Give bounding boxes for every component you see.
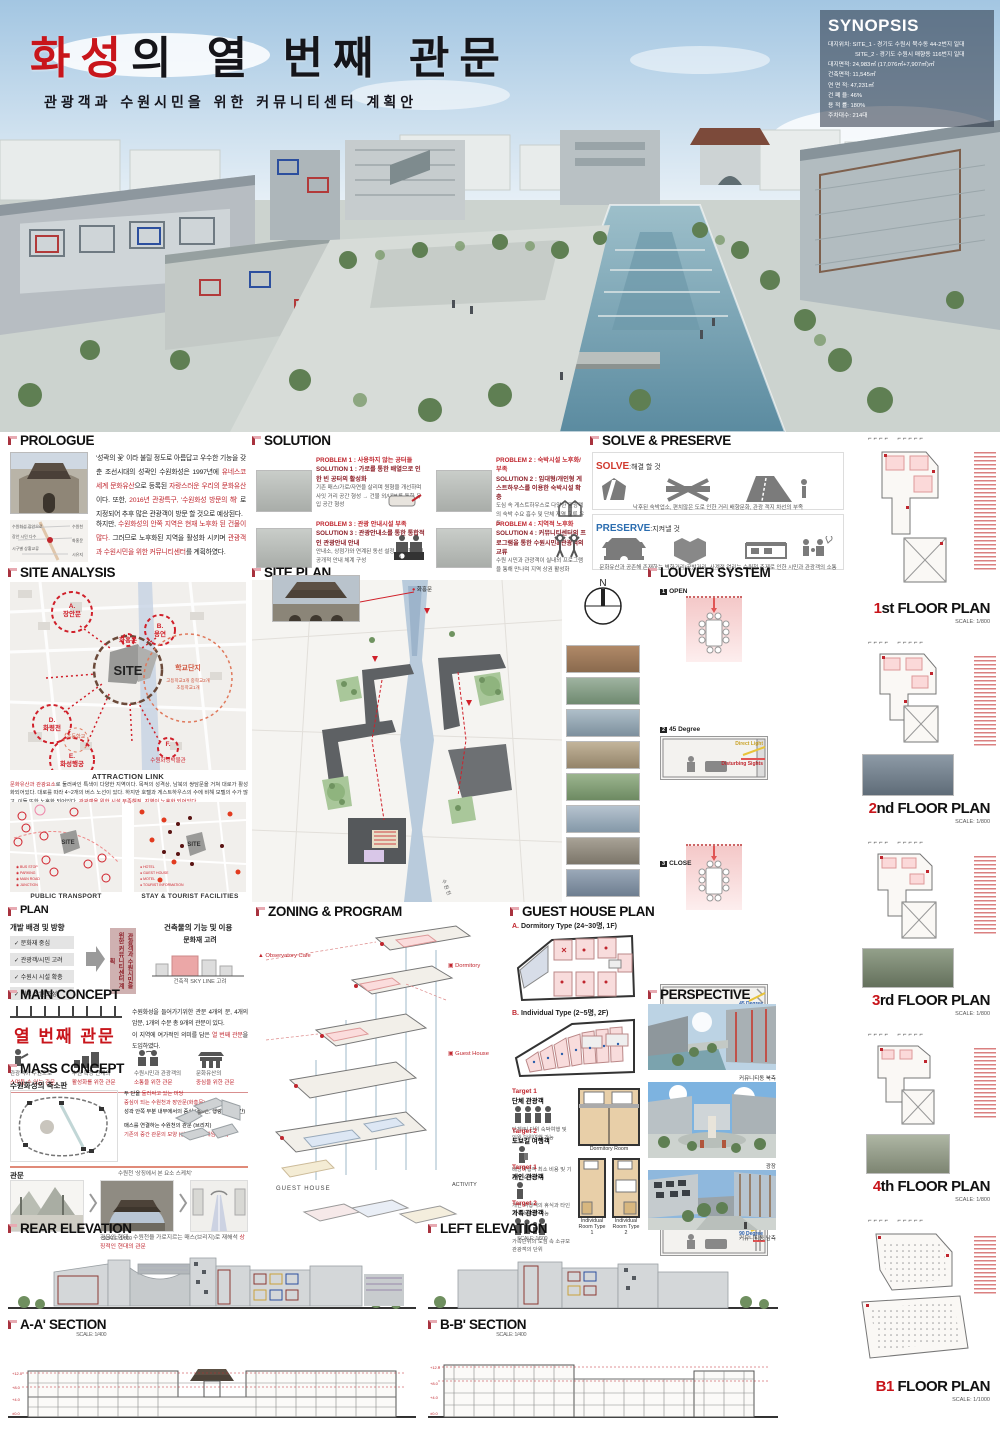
svg-text:학교단지: 학교단지 bbox=[175, 663, 201, 672]
dimension-ticks: ⌐⌐⌐⌐ ⌐⌐⌐⌐⌐ bbox=[868, 640, 925, 646]
guest-house-type-b: B. Individual Type (2~5명, 2F) bbox=[512, 1008, 608, 1018]
gap-arrow-icon bbox=[388, 492, 422, 510]
aa-section-drawing: +12.0+8.0+4.0±0.0 bbox=[8, 1345, 416, 1425]
site-photo bbox=[566, 837, 640, 865]
check-item: 문화재 중심 bbox=[10, 936, 74, 949]
individual-type-plan bbox=[512, 1018, 638, 1080]
plan-goal-box: 관광객과 수원시민을 위한 커뮤니티센터 계획 bbox=[110, 928, 136, 994]
stay-tourist-caption: STAY & TOURIST FACILITIES bbox=[134, 893, 246, 900]
main-title: 화성의 열 번째 관문 bbox=[30, 22, 590, 86]
svg-text:화령전: 화령전 bbox=[43, 723, 61, 732]
svg-text:SITE: SITE bbox=[187, 842, 200, 848]
louver-state-open: 1OPEN bbox=[660, 588, 687, 595]
section-guest-house: GUEST HOUSE PLAN bbox=[510, 905, 654, 919]
svg-text:A.: A. bbox=[69, 603, 76, 610]
fortress-loop-sketch bbox=[10, 1090, 118, 1162]
north-arrow-icon: N bbox=[580, 576, 626, 628]
public-transport-map: SITE ◉ BUS STOP◉ PARKING◉ MAIN ROAD◉ JUN… bbox=[10, 802, 122, 892]
svg-text:수원화성박물관: 수원화성박물관 bbox=[150, 756, 185, 764]
mass-model bbox=[168, 1090, 248, 1154]
solution-photo bbox=[436, 528, 492, 568]
prologue-paragraph-2: 하지만, 수원화성의 안쪽 지역은 현재 노후화 된 건물이 많다. 그러므로 … bbox=[96, 518, 246, 560]
corner-bracket-icon bbox=[8, 1224, 17, 1233]
svg-text:◉ PARKING: ◉ PARKING bbox=[16, 871, 36, 875]
section-main-concept: MAIN CONCEPT bbox=[8, 988, 119, 1002]
site-photo bbox=[566, 869, 640, 897]
svg-text:화성행궁: 화성행궁 bbox=[60, 759, 84, 768]
svg-text:수원천: 수원천 bbox=[72, 523, 83, 529]
louver-plan-45 bbox=[686, 844, 742, 910]
synopsis-row: 대지위치: SITE_1 - 경기도 수원시 북수동 44-2번지 일대 bbox=[828, 40, 986, 50]
room-legend bbox=[974, 856, 996, 936]
section-perspective: PERSPECTIVE bbox=[648, 988, 750, 1002]
guest-house-type-a: A. Dormitory Type (24~30명, 1F) bbox=[512, 921, 617, 931]
perspective-render-2 bbox=[648, 1082, 776, 1158]
svg-text:● HOTEL: ● HOTEL bbox=[140, 865, 155, 869]
room-legend bbox=[974, 656, 996, 746]
dimension-ticks: ⌐⌐⌐⌐ ⌐⌐⌐⌐⌐ bbox=[868, 840, 925, 846]
synopsis-row: SITE_2 - 경기도 수원시 매향동 116번지 일대 bbox=[828, 50, 986, 60]
dormitory-room-plan: Dormitory Room bbox=[578, 1088, 640, 1150]
main-concept-keyword: 열 번째 관문 bbox=[14, 1022, 116, 1047]
svg-text:용연: 용연 bbox=[154, 629, 166, 638]
perspective-caption-1: 커뮤니티동 북측 bbox=[648, 1074, 776, 1082]
rear-elevation-drawing bbox=[8, 1252, 416, 1314]
floor-plan-2-label: 2nd FLOOR PLAN SCALE: 1/800 bbox=[860, 800, 990, 825]
floor-plan-b1-label: B1 FLOOR PLAN SCALE: 1/1000 bbox=[860, 1378, 990, 1403]
svg-text:◉ BUS STOP: ◉ BUS STOP bbox=[16, 865, 38, 869]
perspective-caption-2: 광장 bbox=[648, 1162, 776, 1170]
section-prologue: PROLOGUE bbox=[8, 434, 94, 448]
svg-text:F.: F. bbox=[165, 741, 170, 748]
svg-text:◉ JUNCTION: ◉ JUNCTION bbox=[16, 883, 38, 887]
public-transport-caption: PUBLIC TRANSPORT bbox=[10, 893, 122, 900]
svg-text:+4.0: +4.0 bbox=[430, 1395, 439, 1400]
svg-text:초등학교1개: 초등학교1개 bbox=[176, 684, 199, 691]
perspective-render-1 bbox=[648, 1004, 776, 1070]
fortress-photo bbox=[10, 452, 88, 514]
corner-bracket-icon bbox=[8, 1064, 17, 1073]
corner-bracket-icon bbox=[648, 990, 657, 999]
svg-text:● MOTEL: ● MOTEL bbox=[140, 877, 155, 881]
prologue-site-diagram: 수원화성 장안으로장안 시민 다수시구별 상황교류수원천화홍문시유지 bbox=[10, 520, 88, 562]
solution-photo bbox=[436, 470, 492, 512]
individual-room-2-plan: Individual Room Type 2 bbox=[612, 1158, 640, 1224]
hwahongmun-photo bbox=[272, 575, 360, 622]
perspective-render-3 bbox=[648, 1170, 776, 1230]
synopsis-row: 건축면적: 11,545㎡ bbox=[828, 70, 986, 80]
svg-text:● GUEST HOUSE: ● GUEST HOUSE bbox=[140, 871, 169, 875]
svg-text:+12.0: +12.0 bbox=[430, 1365, 441, 1370]
corner-bracket-icon bbox=[428, 1320, 437, 1329]
corner-bracket-icon bbox=[252, 568, 261, 577]
svg-text:장안문: 장안문 bbox=[63, 609, 81, 618]
people-cheer-icon bbox=[552, 532, 582, 558]
zoning-label-guesthouse: ▣ Guest House bbox=[448, 1050, 489, 1059]
board-title: 화성의 열 번째 관문 관광객과 수원시민을 위한 커뮤니티센터 계획안 bbox=[30, 22, 590, 112]
corner-bracket-icon bbox=[256, 907, 265, 916]
section-zoning: ZONING & PROGRAM bbox=[256, 905, 402, 919]
skyline-chart bbox=[150, 944, 246, 978]
svg-text:고등학교3개 중학교2개: 고등학교3개 중학교2개 bbox=[166, 677, 210, 684]
svg-text:i: i bbox=[400, 555, 401, 561]
svg-text:시유지: 시유지 bbox=[72, 551, 83, 557]
section-aa: A-A' SECTIONSCALE: 1/400 bbox=[8, 1318, 106, 1338]
floor-plan-4-photo bbox=[866, 1134, 950, 1174]
louver-state-close: 3CLOSE bbox=[660, 860, 691, 867]
plan-col-1: 문화재 고려 건축적 SKY LINE 고려 bbox=[150, 934, 250, 987]
svg-text:E.: E. bbox=[69, 753, 75, 760]
svg-text:+12.0: +12.0 bbox=[12, 1371, 23, 1376]
room-legend bbox=[974, 1048, 996, 1118]
svg-text:B.: B. bbox=[157, 623, 164, 630]
svg-text:수원화성 장안으로: 수원화성 장안으로 bbox=[12, 523, 43, 529]
chevron-right-icon bbox=[178, 1178, 188, 1228]
synopsis-row: 주차대수: 214대 bbox=[828, 111, 986, 121]
synopsis-title: SYNOPSIS bbox=[828, 16, 986, 36]
section-louver: LOUVER SYSTEM bbox=[648, 566, 770, 580]
corner-bracket-icon bbox=[252, 436, 261, 445]
corner-bracket-icon bbox=[8, 907, 17, 916]
corner-bracket-icon bbox=[8, 568, 17, 577]
floor-plan-3-photo bbox=[862, 948, 954, 988]
info-desk-icon: i bbox=[392, 532, 426, 562]
section-bb: B-B' SECTIONSCALE: 1/400 bbox=[428, 1318, 526, 1338]
floor-plan-3-label: 3rd FLOOR PLAN SCALE: 1/800 bbox=[860, 992, 990, 1017]
site-photo bbox=[566, 773, 640, 801]
site-photo bbox=[566, 645, 640, 673]
corner-bracket-icon bbox=[8, 1320, 17, 1329]
stay-tourist-map: SITE ● HOTEL● GUEST HOUSE● MOTEL● TOURIS… bbox=[134, 802, 246, 892]
floor-plan-4-drawing bbox=[852, 1042, 970, 1132]
synopsis-panel: SYNOPSIS 대지위치: SITE_1 - 경기도 수원시 북수동 44-2… bbox=[820, 10, 994, 127]
dormitory-type-plan bbox=[512, 932, 638, 1004]
leader-line bbox=[360, 590, 416, 604]
svg-text:+8.0: +8.0 bbox=[12, 1385, 21, 1390]
floor-plan-1-label: 1st FLOOR PLAN SCALE: 1/800 bbox=[860, 600, 990, 625]
zoning-activity-tag: ACTIVITY bbox=[452, 1182, 477, 1188]
section-left-elevation: LEFT ELEVATIONSCALE: 1/600 bbox=[428, 1222, 547, 1242]
main-concept-desc: 수원화성을 들어가기위한 관문 4개의 문, 4개의 암문, 1개의 수문 총 … bbox=[132, 1008, 248, 1054]
floor-plan-2-photo bbox=[862, 754, 954, 796]
synopsis-row: 연 면 적: 47,231㎡ bbox=[828, 81, 986, 91]
presentation-board: 화성의 열 번째 관문 관광객과 수원시민을 위한 커뮤니티센터 계획안 SYN… bbox=[0, 0, 1000, 1429]
solution-photo bbox=[256, 470, 312, 512]
dimension-ticks: ⌐⌐⌐⌐ ⌐⌐⌐⌐⌐ bbox=[868, 436, 925, 442]
arrow-icon bbox=[84, 944, 106, 974]
room-legend bbox=[974, 1236, 996, 1296]
section-plan: PLAN bbox=[8, 905, 48, 916]
site-analysis-map: SITE A.장안문 B.용연 화홍문 D.화령전 E.화성행궁 F. bbox=[10, 582, 246, 770]
corner-bracket-icon bbox=[648, 568, 657, 577]
section-mass-concept: MASS CONCEPT bbox=[8, 1062, 124, 1076]
bb-section-drawing: +12.0+8.0+4.0±0.0 bbox=[428, 1345, 778, 1425]
individual-room-1-plan: Individual Room Type 1 bbox=[578, 1158, 606, 1224]
prologue-paragraph-1: '성곽의 꽃' 이라 불릴 정도로 아름답고 우수한 기능을 갖춘 조선시대의 … bbox=[96, 452, 246, 522]
zoning-guesthouse-tag: GUEST HOUSE bbox=[276, 1186, 331, 1192]
floor-plan-b1-drawing bbox=[840, 1230, 990, 1370]
corner-bracket-icon bbox=[428, 1224, 437, 1233]
svg-text:±0.0: ±0.0 bbox=[430, 1411, 439, 1416]
floor-plan-4-label: 4th FLOOR PLAN SCALE: 1/800 bbox=[860, 1178, 990, 1203]
left-elevation-drawing bbox=[428, 1252, 778, 1314]
section-solve-preserve: SOLVE & PRESERVE bbox=[590, 434, 731, 448]
corner-bracket-icon bbox=[8, 990, 17, 999]
svg-text:화홍문: 화홍문 bbox=[72, 537, 83, 543]
louver-section-open: Direct Light Disturbing Sights bbox=[660, 736, 768, 780]
site-photo bbox=[566, 805, 640, 833]
synopsis-row: 용 적 률: 180% bbox=[828, 101, 986, 111]
battlement-motif bbox=[10, 1006, 122, 1018]
section-solution: SOLUTION bbox=[252, 434, 331, 448]
site-photo bbox=[566, 709, 640, 737]
svg-text:◉ MAIN ROAD: ◉ MAIN ROAD bbox=[16, 877, 40, 881]
section-rear-elevation: REAR ELEVATIONSCALE: 1/600 bbox=[8, 1222, 132, 1242]
solve-box: SOLVE:해결 할 것 낙후된 숙박업소, 편치않은 도로 인한 거리 배향문… bbox=[592, 452, 844, 510]
svg-text:초등학교: 초등학교 bbox=[67, 733, 86, 740]
preserve-icons bbox=[596, 536, 842, 564]
svg-text:+8.0: +8.0 bbox=[430, 1381, 439, 1386]
floor-plan-3-drawing bbox=[852, 850, 970, 946]
house-icon bbox=[552, 498, 582, 518]
svg-text:+4.0: +4.0 bbox=[12, 1397, 21, 1402]
svg-text:장안 시민 다수: 장안 시민 다수 bbox=[12, 533, 37, 539]
floor-plan-1-drawing bbox=[852, 446, 970, 596]
site-photo bbox=[566, 677, 640, 705]
corner-bracket-icon bbox=[590, 436, 599, 445]
dimension-ticks: ⌐⌐⌐⌐ ⌐⌐⌐⌐⌐ bbox=[868, 1032, 925, 1038]
svg-text:● TOURIST INFORMATION: ● TOURIST INFORMATION bbox=[140, 883, 184, 887]
gate-perspective-sketch bbox=[190, 1180, 248, 1232]
corner-bracket-icon bbox=[8, 436, 17, 445]
corner-bracket-icon bbox=[510, 907, 519, 916]
zoning-label-dormitory: ▣ Dormitory bbox=[448, 962, 480, 971]
zoning-label-observatory: ▲ Observatory Cafe bbox=[258, 952, 311, 961]
svg-text:D.: D. bbox=[49, 717, 56, 724]
solution-photo bbox=[256, 528, 312, 568]
site-photo bbox=[566, 741, 640, 769]
svg-text:SITE: SITE bbox=[114, 663, 143, 678]
room-legend bbox=[974, 452, 996, 572]
preserve-box: PRESERVE:지켜낼 것 문화유산과 공존해 존재하는 벽화거리/공방거리,… bbox=[592, 514, 844, 570]
check-item: 관광객/시민 고려 bbox=[10, 953, 74, 966]
svg-text:시구별 상황교류: 시구별 상황교류 bbox=[12, 545, 39, 551]
svg-text:화홍문: 화홍문 bbox=[119, 635, 137, 644]
louver-state-45: 245 Degree bbox=[660, 726, 700, 733]
check-item: 수원시 시설 확충 bbox=[10, 970, 74, 983]
louver-plan-open bbox=[686, 596, 742, 662]
svg-text:SITE: SITE bbox=[61, 840, 74, 846]
subtitle: 관광객과 수원시민을 위한 커뮤니티센터 계획안 bbox=[44, 92, 590, 112]
perspective-caption-3: 커뮤니티동 남측 bbox=[648, 1234, 776, 1242]
site-photo-strip bbox=[566, 645, 640, 897]
section-site-analysis: SITE ANALYSIS bbox=[8, 566, 115, 580]
synopsis-row: 대지면적: 24,983㎡ (17,076㎡+7,907㎡)㎡ bbox=[828, 60, 986, 70]
svg-text:±0.0: ±0.0 bbox=[12, 1411, 21, 1416]
synopsis-row: 건 폐 율: 46% bbox=[828, 91, 986, 101]
divider bbox=[10, 1166, 248, 1168]
dimension-ticks: ⌐⌐⌐⌐ ⌐⌐⌐⌐⌐ bbox=[868, 1218, 925, 1224]
solve-icons bbox=[596, 474, 842, 504]
attraction-link-caption: ATTRACTION LINK bbox=[10, 772, 246, 781]
site-plan-drawing: 수 원 천 bbox=[252, 580, 562, 902]
floor-plan-2-drawing bbox=[852, 650, 970, 750]
